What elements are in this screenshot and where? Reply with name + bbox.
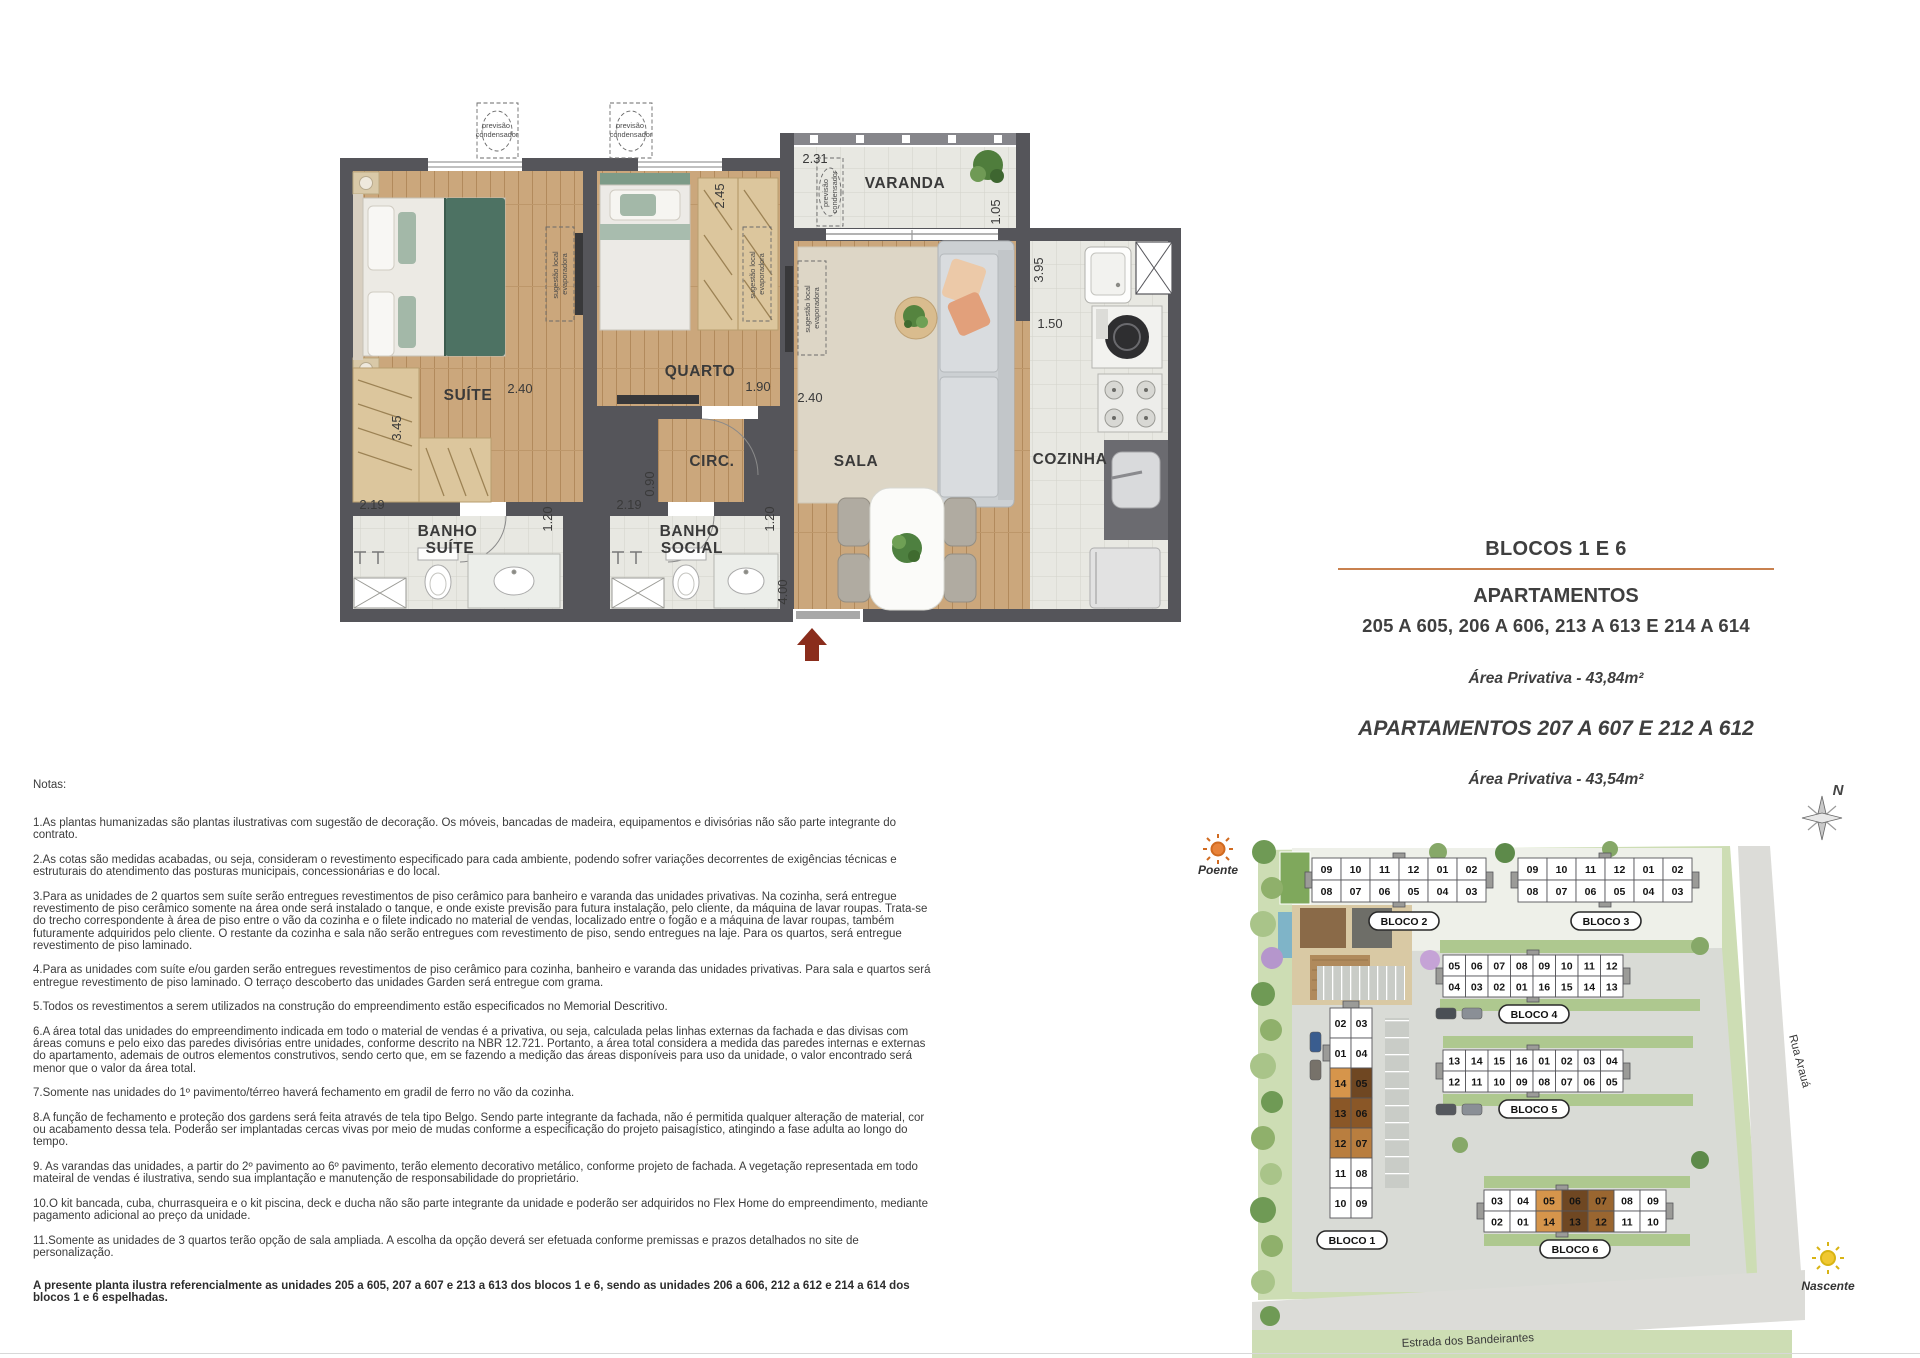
poente-label: Poente	[1198, 863, 1238, 877]
note-item: 3.Para as unidades de 2 quartos sem suít…	[33, 891, 938, 952]
unit-number: 03	[1471, 981, 1483, 993]
dim-banho-social-depth: 1.20	[762, 506, 777, 531]
unit-number: 05	[1614, 886, 1626, 898]
unit-number: 04	[1606, 1055, 1618, 1067]
notes-footer: A presente planta ilustra referencialmen…	[33, 1280, 938, 1304]
dim-banho-suite-width: 2.19	[359, 497, 384, 512]
unit-number: 16	[1516, 1055, 1528, 1067]
quarto-tv	[617, 395, 699, 404]
notes-section: Notas: 1.As plantas humanizadas são plan…	[33, 779, 938, 1317]
unit-number: 07	[1493, 960, 1505, 972]
dim-cozinha-width: 1.50	[1037, 316, 1062, 331]
room-label-sala: SALA	[834, 453, 879, 470]
unit-number: 09	[1321, 864, 1333, 876]
unit-number: 11	[1335, 1168, 1346, 1180]
unit-number: 09	[1647, 1195, 1659, 1207]
note-item: 10.O kit bancada, cuba, churrasqueira e …	[33, 1198, 938, 1222]
unit-number: 10	[1493, 1076, 1505, 1088]
unit-number: 03	[1672, 886, 1684, 898]
room-label-circ: CIRC.	[689, 453, 734, 470]
unit-number: 10	[1561, 960, 1573, 972]
unit-number: 05	[1606, 1076, 1618, 1088]
bloco-label: BLOCO 2	[1381, 916, 1428, 928]
unit-number: 11	[1585, 864, 1596, 876]
unit-number: 06	[1583, 1076, 1595, 1088]
condenser-label-2: previsão condensador	[610, 121, 653, 139]
unit-number: 10	[1350, 864, 1362, 876]
suite-tv	[575, 233, 583, 315]
fridge	[1090, 548, 1160, 608]
note-item: 8.A função de fechamento e proteção dos …	[33, 1112, 938, 1149]
dim-quarto-depth: 2.45	[712, 183, 727, 208]
unit-number: 01	[1643, 864, 1655, 876]
unit-number: 09	[1516, 1076, 1528, 1088]
dim-varanda-width: 2.31	[802, 151, 827, 166]
bloco-label: BLOCO 3	[1583, 916, 1630, 928]
unit-number: 04	[1517, 1195, 1529, 1207]
page: previsão condensador previsão condensado…	[0, 0, 1920, 1358]
kitchen-sink	[1112, 452, 1160, 508]
note-item: 5.Todos os revestimentos a serem utiliza…	[33, 1001, 938, 1013]
dim-banho-social-width: 2.19	[616, 497, 641, 512]
unit-number: 01	[1437, 864, 1449, 876]
unit-number: 15	[1493, 1055, 1505, 1067]
unit-number: 02	[1672, 864, 1684, 876]
unit-number: 01	[1516, 981, 1528, 993]
bloco-label: BLOCO 4	[1511, 1009, 1558, 1021]
unit-number: 06	[1569, 1195, 1581, 1207]
room-label-banho-suite: BANHO SUÍTE	[418, 523, 483, 557]
unit-number: 08	[1321, 886, 1333, 898]
note-item: 4.Para as unidades com suíte e/ou garden…	[33, 964, 938, 988]
unit-number: 11	[1379, 864, 1390, 876]
evaporator-label-sala: sugestão local evaporadora	[803, 283, 821, 332]
unit-number: 01	[1335, 1048, 1347, 1060]
unit-number: 01	[1538, 1055, 1550, 1067]
unit-number: 14	[1583, 981, 1595, 993]
unit-number: 08	[1356, 1168, 1368, 1180]
room-label-cozinha: COZINHA	[1033, 451, 1108, 468]
unit-number: 03	[1466, 886, 1478, 898]
unit-number: 07	[1561, 1076, 1573, 1088]
evaporator-label-quarto: sugestão local evaporadora	[748, 249, 766, 298]
notes-heading: Notas:	[33, 779, 938, 791]
title-blocos: BLOCOS 1 E 6	[1338, 538, 1774, 561]
unit-number: 08	[1538, 1076, 1550, 1088]
unit-number: 10	[1335, 1198, 1347, 1210]
unit-number: 12	[1335, 1138, 1347, 1150]
unit-number: 06	[1356, 1108, 1368, 1120]
unit-number: 02	[1493, 981, 1505, 993]
unit-number: 07	[1595, 1195, 1607, 1207]
sala-tv	[785, 266, 793, 352]
unit-number: 10	[1556, 864, 1568, 876]
unit-number: 06	[1585, 886, 1597, 898]
unit-number: 09	[1527, 864, 1539, 876]
unit-number: 07	[1556, 886, 1568, 898]
unit-number: 08	[1527, 886, 1539, 898]
bloco-label: BLOCO 1	[1329, 1235, 1376, 1247]
unit-number: 11	[1471, 1076, 1482, 1088]
bloco-label: BLOCO 6	[1552, 1244, 1599, 1256]
unit-number: 04	[1437, 886, 1449, 898]
unit-number: 06	[1471, 960, 1483, 972]
unit-number: 07	[1356, 1138, 1368, 1150]
unit-number: 11	[1584, 960, 1595, 972]
note-item: 7.Somente nas unidades do 1º pavimento/t…	[33, 1087, 938, 1099]
nascente-sun-icon	[1812, 1242, 1844, 1274]
floor-plan: previsão condensador previsão condensado…	[340, 103, 1181, 661]
title-apartamentos: APARTAMENTOS	[1338, 585, 1774, 608]
unit-number: 14	[1335, 1078, 1347, 1090]
unit-number: 06	[1379, 886, 1391, 898]
unit-number: 13	[1569, 1216, 1581, 1228]
note-item: 1.As plantas humanizadas são plantas ilu…	[33, 817, 938, 841]
room-label-suite: SUÍTE	[444, 387, 493, 404]
dim-sala-width: 2.40	[797, 390, 822, 405]
unit-number: 12	[1606, 960, 1618, 972]
unit-number: 14	[1543, 1216, 1555, 1228]
unit-number: 12	[1408, 864, 1420, 876]
title-area-1: Área Privativa - 43,84m²	[1338, 670, 1774, 688]
unit-number: 04	[1643, 886, 1655, 898]
room-label-quarto: QUARTO	[665, 363, 735, 380]
unit-number: 04	[1448, 981, 1460, 993]
unit-number: 08	[1516, 960, 1528, 972]
unit-number: 05	[1408, 886, 1420, 898]
note-item: 6.A área total das unidades do empreendi…	[33, 1026, 938, 1075]
unit-number: 13	[1448, 1055, 1460, 1067]
site-plan: 091011120102080706050403BLOCO 2091011120…	[1198, 782, 1855, 1358]
unit-number: 07	[1350, 886, 1362, 898]
unit-number: 12	[1448, 1076, 1460, 1088]
unit-number: 03	[1356, 1018, 1368, 1030]
unit-number: 13	[1606, 981, 1618, 993]
unit-number: 02	[1335, 1018, 1347, 1030]
unit-number: 13	[1335, 1108, 1347, 1120]
condenser-label-1: previsão condensador	[476, 121, 519, 139]
compass-rose-icon	[1802, 796, 1842, 840]
title-apartamentos-2: APARTAMENTOS 207 A 607 E 212 A 612	[1338, 717, 1774, 741]
room-label-banho-social: BANHO SOCIAL	[660, 523, 725, 557]
entry-arrow-icon	[797, 628, 827, 661]
unit-number: 12	[1614, 864, 1626, 876]
unit-number: 09	[1538, 960, 1550, 972]
unit-number: 02	[1466, 864, 1478, 876]
unit-number: 08	[1621, 1195, 1633, 1207]
unit-number: 11	[1621, 1216, 1632, 1228]
page-edge-line	[0, 1353, 1920, 1354]
unit-number: 09	[1356, 1198, 1368, 1210]
dim-suite-width: 2.40	[507, 381, 532, 396]
compass-label: N	[1833, 782, 1845, 799]
unit-number: 05	[1356, 1078, 1368, 1090]
entry-door-leaf	[796, 611, 860, 619]
dim-banho-suite-depth: 1.20	[540, 506, 555, 531]
unit-number: 04	[1356, 1048, 1368, 1060]
title-rule	[1338, 568, 1774, 570]
unit-number: 05	[1543, 1195, 1555, 1207]
road-right-label: Rua Arauá	[1786, 1033, 1812, 1089]
title-block: BLOCOS 1 E 6 APARTAMENTOS 205 A 605, 206…	[1338, 538, 1774, 789]
unit-number: 14	[1471, 1055, 1483, 1067]
unit-number: 16	[1538, 981, 1550, 993]
poente-sun-icon	[1203, 834, 1233, 864]
dim-circ-width: 0.90	[642, 471, 657, 496]
title-area-2: Área Privativa - 43,54m²	[1338, 771, 1774, 789]
dim-suite-depth: 3.45	[389, 415, 404, 440]
note-item: 9. As varandas das unidades, a partir do…	[33, 1161, 938, 1185]
unit-number: 02	[1561, 1055, 1573, 1067]
note-item: 2.As cotas são medidas acabadas, ou seja…	[33, 854, 938, 878]
evaporator-label-suite: sugestão local evaporadora	[551, 249, 569, 298]
title-units: 205 A 605, 206 A 606, 213 A 613 E 214 A …	[1338, 615, 1774, 637]
bloco-label: BLOCO 5	[1511, 1104, 1558, 1116]
dim-varanda-depth: 1.05	[988, 199, 1003, 224]
unit-number: 15	[1561, 981, 1573, 993]
dim-sala-depth: 4.00	[775, 579, 790, 604]
unit-number: 05	[1448, 960, 1460, 972]
unit-number: 02	[1491, 1216, 1503, 1228]
unit-number: 12	[1595, 1216, 1607, 1228]
dim-cozinha-depth: 3.95	[1031, 257, 1046, 282]
unit-number: 03	[1491, 1195, 1503, 1207]
dim-quarto-width: 1.90	[745, 379, 770, 394]
unit-number: 01	[1517, 1216, 1529, 1228]
note-item: 11.Somente as unidades de 3 quartos terã…	[33, 1235, 938, 1259]
nascente-label: Nascente	[1801, 1279, 1855, 1293]
room-label-varanda: VARANDA	[865, 175, 946, 192]
unit-number: 10	[1647, 1216, 1659, 1228]
unit-number: 03	[1583, 1055, 1595, 1067]
